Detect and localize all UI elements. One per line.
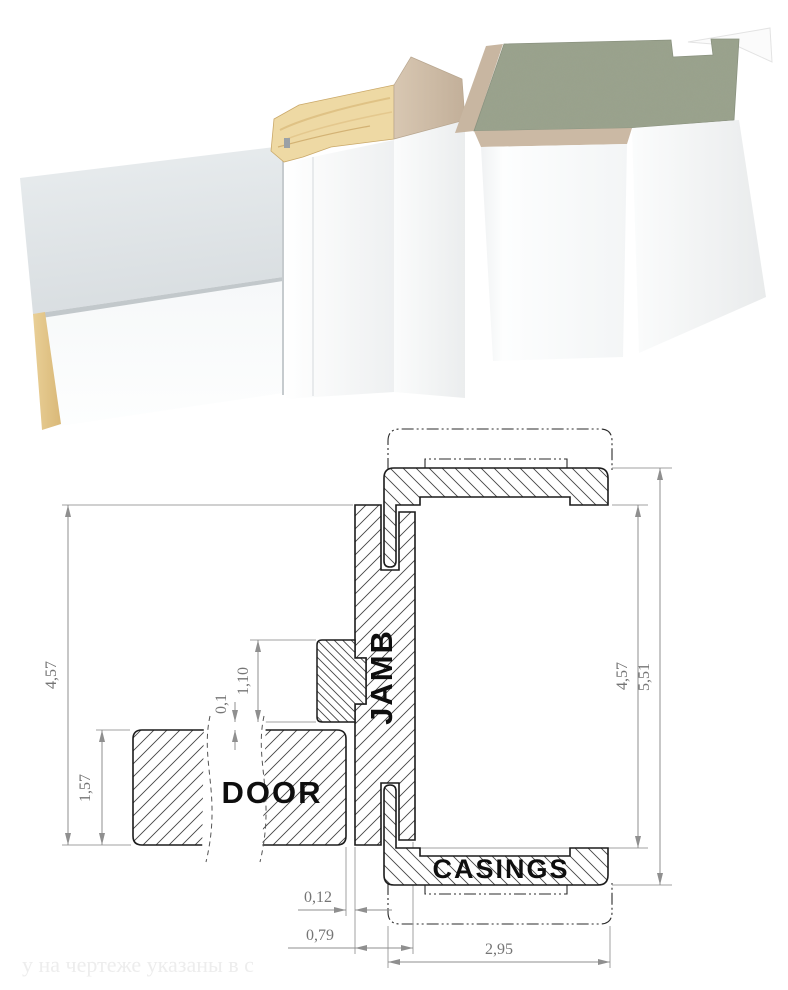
phantom-bottom-outer	[388, 883, 612, 924]
casings-label: CASINGS	[432, 854, 569, 884]
wall-right-face	[632, 120, 766, 353]
dim-label-jamb-depth: 0,79	[306, 927, 334, 944]
dim-label-left-total: 4,57	[43, 661, 60, 689]
door-leaf-3d	[20, 146, 283, 430]
door-label: DOOR	[222, 775, 323, 810]
top-casing-section	[384, 468, 608, 567]
render-3d	[20, 25, 772, 430]
dim-label-casing-width: 2,95	[485, 941, 513, 958]
dim-label-door-thickness: 1,57	[77, 774, 94, 802]
phantom-top-outer	[388, 429, 612, 470]
dim-label-right-total: 5,51	[636, 663, 653, 691]
extension-board-3d	[394, 57, 465, 398]
door-frame-assembly-page: 4,57 1,57 1,10 0,1 0,12 0,79 2,95 4,57 5…	[0, 0, 788, 990]
jamb-label: JAMB	[364, 629, 399, 725]
jamb-seal-chip	[284, 138, 290, 148]
wall-3d	[450, 25, 772, 361]
casing-beige-strip	[474, 128, 632, 147]
extension-board-front	[394, 120, 465, 398]
dim-label-stop-clearance: 0,1	[213, 694, 230, 714]
drawing-2d: 4,57 1,57 1,10 0,1 0,12 0,79 2,95 4,57 5…	[22, 429, 672, 977]
jamb-3d	[271, 85, 394, 399]
door-frame-technical-drawing: 4,57 1,57 1,10 0,1 0,12 0,79 2,95 4,57 5…	[0, 0, 788, 990]
dim-label-stop-width: 1,10	[235, 667, 252, 695]
jamb-front-band	[284, 140, 394, 399]
dim-label-right-opening: 4,57	[614, 662, 631, 690]
dim-label-door-gap: 0,12	[304, 889, 332, 906]
units-footnote: у на чертеже указаны в с	[22, 952, 254, 977]
casing-front-3d	[481, 144, 627, 361]
